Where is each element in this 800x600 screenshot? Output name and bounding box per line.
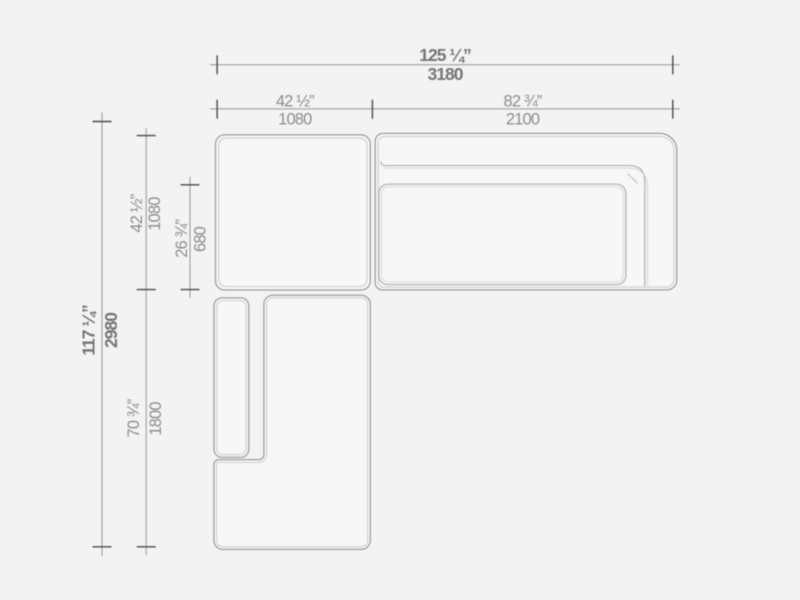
svg-text:125 ¼”: 125 ¼” bbox=[419, 45, 471, 65]
svg-text:117 ¼”: 117 ¼” bbox=[78, 305, 98, 356]
svg-text:2980: 2980 bbox=[101, 312, 121, 348]
svg-text:1080: 1080 bbox=[146, 197, 164, 231]
svg-text:82 ¾”: 82 ¾” bbox=[504, 93, 542, 111]
svg-text:1800: 1800 bbox=[147, 402, 165, 436]
svg-text:3180: 3180 bbox=[428, 64, 464, 84]
svg-text:26 ¾”: 26 ¾” bbox=[173, 219, 191, 257]
svg-text:70 ¾”: 70 ¾” bbox=[125, 399, 143, 437]
svg-text:1080: 1080 bbox=[278, 111, 312, 129]
svg-text:42 ½”: 42 ½” bbox=[276, 93, 314, 111]
svg-text:680: 680 bbox=[192, 226, 210, 252]
svg-text:2100: 2100 bbox=[506, 111, 540, 129]
svg-text:42 ½”: 42 ½” bbox=[128, 194, 146, 232]
